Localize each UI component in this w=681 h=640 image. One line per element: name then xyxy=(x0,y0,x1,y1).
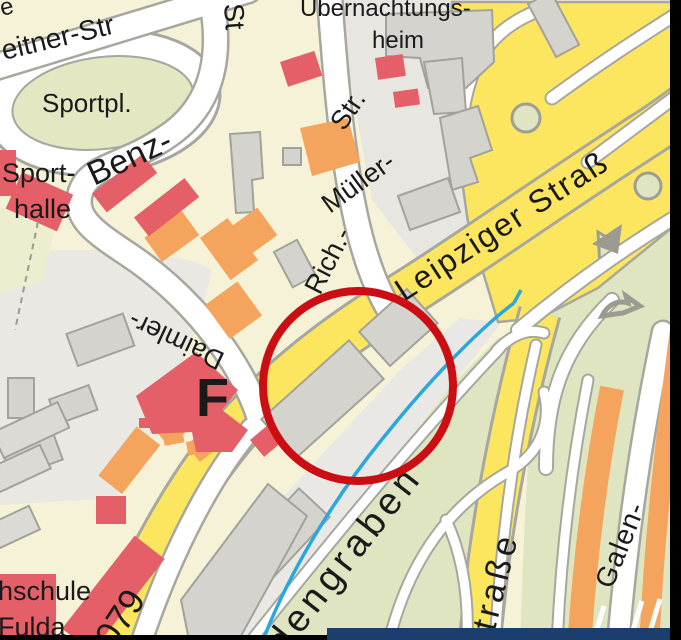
building xyxy=(139,418,151,428)
label-heim-2: heim xyxy=(372,27,424,54)
map-canvas[interactable]: e eitner-Str St Sportpl. Sport- halle Be… xyxy=(0,0,681,640)
label-sporthalle-2: halle xyxy=(14,194,71,224)
window-bar xyxy=(327,628,681,640)
f-marker: F xyxy=(196,368,229,428)
label-hochschule-1: hschule xyxy=(0,576,91,606)
label-heim-1: Übernachtungs- xyxy=(300,0,471,22)
building xyxy=(96,496,126,524)
label-st-vertical: St xyxy=(218,2,251,31)
label-sportplatz: Sportpl. xyxy=(42,88,132,118)
building xyxy=(8,378,34,418)
building xyxy=(283,148,301,165)
label-sporthalle-1: Sport- xyxy=(2,158,76,188)
building xyxy=(375,54,406,80)
map-viewport[interactable]: e eitner-Str St Sportpl. Sport- halle Be… xyxy=(0,0,681,640)
